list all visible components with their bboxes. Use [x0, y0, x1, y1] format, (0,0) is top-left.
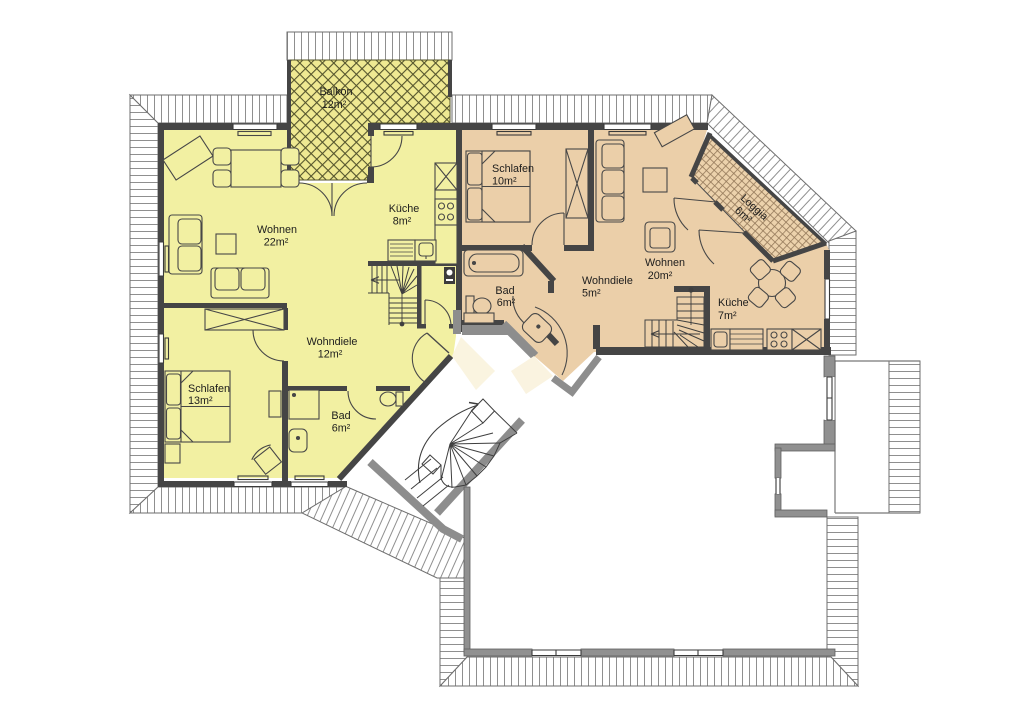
svg-text:12m²: 12m²	[318, 349, 343, 361]
svg-text:5m²: 5m²	[582, 288, 601, 300]
svg-text:20m²: 20m²	[648, 270, 673, 282]
svg-text:Bad: Bad	[331, 410, 350, 422]
svg-text:Küche: Küche	[718, 297, 749, 309]
svg-text:Schlafen: Schlafen	[492, 163, 534, 175]
svg-text:8m²: 8m²	[393, 216, 412, 228]
svg-text:Balkon: Balkon	[319, 86, 352, 98]
svg-text:Wohndiele: Wohndiele	[582, 275, 633, 287]
svg-text:Wohndiele: Wohndiele	[307, 336, 358, 348]
svg-text:13m²: 13m²	[188, 395, 213, 407]
svg-text:Schlafen: Schlafen	[188, 383, 230, 395]
svg-text:7m²: 7m²	[718, 310, 737, 322]
svg-text:Wohnen: Wohnen	[257, 224, 297, 236]
svg-text:6m²: 6m²	[497, 297, 516, 309]
svg-text:Wohnen: Wohnen	[645, 257, 685, 269]
svg-text:6m²: 6m²	[332, 423, 351, 435]
svg-text:22m²: 22m²	[264, 237, 289, 249]
svg-text:12m²: 12m²	[322, 99, 347, 111]
svg-text:Küche: Küche	[389, 203, 420, 215]
svg-text:Bad: Bad	[495, 285, 514, 297]
svg-text:10m²: 10m²	[492, 176, 517, 188]
